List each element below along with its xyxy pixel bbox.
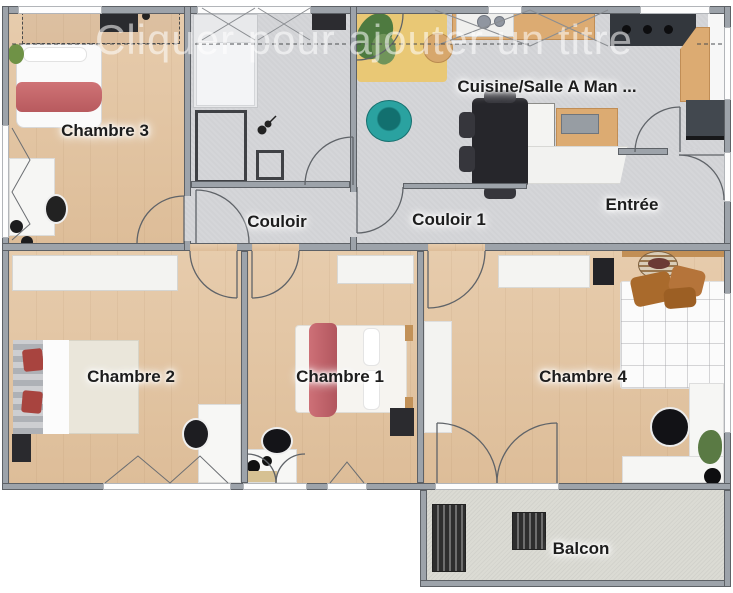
floor-grate[interactable] — [512, 512, 546, 550]
floorplan-canvas: Chambre 3 Couloir Couloir 1 Cuisine/Sall… — [0, 0, 733, 593]
door-opening — [252, 244, 299, 251]
wall-chambre1-chambre4 — [417, 251, 424, 483]
french-door-balcony — [435, 483, 559, 490]
drying-rack[interactable] — [432, 504, 466, 572]
room-label-chambre2[interactable]: Chambre 2 — [87, 367, 175, 387]
burner — [664, 25, 673, 34]
window — [103, 483, 231, 490]
desk-chair[interactable] — [182, 418, 210, 450]
window — [640, 6, 710, 14]
dining-table[interactable] — [472, 98, 528, 188]
wall-balcony-right — [724, 490, 731, 587]
bed-frame-wood — [405, 325, 413, 341]
wall-couloir1-north — [403, 183, 527, 189]
shelf[interactable] — [424, 321, 452, 433]
pillow-orange[interactable] — [663, 287, 697, 310]
wall-entree-north — [618, 148, 668, 155]
window — [488, 6, 522, 14]
wall-divider-horizontal — [2, 243, 731, 251]
wc-room — [256, 150, 284, 180]
bed-pillow[interactable] — [363, 328, 380, 366]
bed-blanket-red[interactable] — [16, 82, 102, 112]
wall-balcony-left — [420, 490, 427, 587]
room-balcon-floor[interactable] — [427, 490, 724, 580]
room-label-entree[interactable]: Entrée — [606, 195, 659, 215]
window — [18, 6, 102, 14]
basket-center — [648, 258, 670, 269]
room-label-couloir1[interactable]: Couloir 1 — [412, 210, 486, 230]
wall-chambre2-chambre1 — [241, 251, 248, 483]
desk-chair[interactable] — [261, 427, 293, 455]
dining-chair[interactable] — [459, 146, 475, 172]
stool[interactable] — [10, 220, 23, 233]
window — [197, 6, 311, 14]
window — [724, 293, 731, 433]
cabinet[interactable] — [498, 255, 590, 288]
room-label-chambre4[interactable]: Chambre 4 — [539, 367, 627, 387]
wall-exterior-top — [2, 6, 731, 14]
pillow-red[interactable] — [21, 390, 43, 414]
door-opening — [428, 244, 485, 251]
door-opening — [668, 148, 698, 155]
kitchen-island[interactable] — [525, 103, 555, 152]
room-label-couloir[interactable]: Couloir — [247, 212, 307, 232]
dresser-dark[interactable] — [12, 434, 31, 462]
french-window — [243, 483, 307, 490]
desk-chair[interactable] — [44, 194, 68, 224]
room-label-cuisine[interactable]: Cuisine/Salle A Man ... — [457, 77, 636, 97]
entrance-door-opening — [724, 152, 731, 202]
dresser-dark[interactable] — [390, 408, 414, 436]
wall-couloir-north — [191, 181, 350, 188]
frame-dark[interactable] — [593, 258, 614, 285]
window-bay — [708, 14, 724, 102]
door-opening — [190, 244, 237, 251]
desk-chair[interactable] — [650, 407, 690, 447]
title-placeholder-watermark[interactable]: Cliquer pour ajouter un titre — [95, 16, 633, 64]
desk-lamp[interactable] — [262, 456, 272, 466]
armchair-teal[interactable] — [366, 100, 412, 142]
counter-white[interactable] — [527, 146, 628, 184]
counter-inset — [561, 114, 599, 134]
bed-pillow[interactable] — [23, 47, 87, 62]
wall-balcony-bottom — [420, 580, 731, 587]
room-label-chambre1[interactable]: Chambre 1 — [296, 367, 384, 387]
door-opening — [350, 192, 357, 237]
bed-sheet-fold — [43, 340, 69, 434]
plant[interactable] — [698, 430, 722, 464]
window — [327, 483, 367, 490]
room-label-chambre3[interactable]: Chambre 3 — [61, 121, 149, 141]
dining-chair[interactable] — [459, 112, 475, 138]
door-opening — [184, 196, 191, 241]
burner — [643, 25, 652, 34]
wardrobe[interactable] — [12, 255, 178, 291]
bathroom-inner-room — [195, 110, 247, 183]
plant[interactable] — [8, 44, 24, 64]
fridge[interactable] — [686, 100, 724, 140]
window — [724, 27, 731, 100]
window — [2, 125, 9, 238]
shelf[interactable] — [337, 255, 414, 284]
room-label-balcon[interactable]: Balcon — [553, 539, 610, 559]
pillow-red[interactable] — [22, 348, 44, 372]
